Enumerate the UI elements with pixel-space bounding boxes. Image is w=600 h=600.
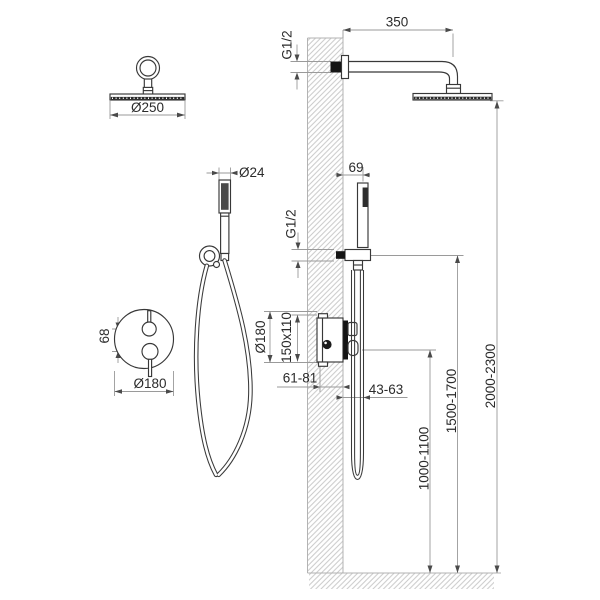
shower-system-technical-drawing: 350 G1/2 2000-2300 1500-1700 1000-1100 6… <box>0 0 600 600</box>
head-height-label: 2000-2300 <box>483 344 498 409</box>
hand-shower-side-sprayface <box>363 188 368 208</box>
dim-head-height: 2000-2300 <box>483 101 504 573</box>
ceiling-flange-inner <box>140 60 156 76</box>
dim-handle-projection: 43-63 <box>337 382 408 403</box>
dim-head-diameter: Ø250 <box>110 100 185 119</box>
hand-offset-label: 69 <box>348 160 363 175</box>
box-tab-top <box>319 314 328 318</box>
arm-nut <box>447 85 461 94</box>
hand-thread-label: G1/2 <box>283 209 298 238</box>
arm-thread-label: G1/2 <box>279 30 294 59</box>
mixer-height-label: 1000-1100 <box>416 427 431 491</box>
dim-holder-height: 1500-1700 <box>371 256 464 574</box>
lower-knob-lever <box>149 359 152 376</box>
arm-length-label: 350 <box>386 15 409 30</box>
hand-shower-front-view <box>196 180 250 475</box>
mixer-front-view <box>115 310 174 377</box>
handle-spacing-label: 68 <box>97 328 112 343</box>
dim-plate-diameter-front: Ø180 <box>115 371 174 396</box>
dim-arm-length: 350 <box>343 15 453 58</box>
hand-shower-holder <box>345 250 371 261</box>
wall-hatch <box>308 38 344 573</box>
mixer-lower-knob <box>142 344 158 360</box>
plate-diameter-side-label: Ø180 <box>253 320 268 353</box>
box-screw-highlight <box>324 342 327 345</box>
floor-section <box>308 573 502 589</box>
holder-height-label: 1500-1700 <box>444 369 459 434</box>
hose-side-inner <box>355 270 361 475</box>
holder-ring-knob <box>214 262 220 268</box>
floor-hatch <box>309 574 494 590</box>
mixer-trim-plate-side <box>343 321 348 360</box>
mixer-upper-knob <box>142 322 156 336</box>
holder-ring-inner <box>204 251 215 262</box>
hand-shower-spray-face <box>221 183 229 210</box>
plate-diameter-front-label: Ø180 <box>133 376 166 391</box>
rain-shower-front-view <box>110 57 185 101</box>
hand-shower-handle <box>221 213 229 254</box>
rain-head-front-sprayface <box>111 97 184 100</box>
head-diameter-label: Ø250 <box>131 100 164 115</box>
shower-arm <box>349 62 458 85</box>
roughin-depth-label: 61-81 <box>283 371 318 386</box>
box-tab-bottom <box>319 362 328 366</box>
hand-diameter-label: Ø24 <box>239 165 265 180</box>
arm-escutcheon <box>342 56 349 79</box>
holder-wall-stub <box>336 251 345 259</box>
mixer-upper-handle-side <box>348 323 357 336</box>
wall-section <box>308 38 344 573</box>
roughin-box-label: 150x110 <box>279 312 294 363</box>
mixer-lower-handle-side <box>348 341 358 356</box>
box-screw <box>322 340 331 349</box>
rough-in-box <box>317 318 343 362</box>
mixer-trim-plate-front <box>115 310 174 369</box>
hose-side-outer <box>352 270 364 480</box>
rain-shower-side-view <box>331 56 493 101</box>
handle-projection-label: 43-63 <box>369 382 404 397</box>
head-stem <box>144 79 151 88</box>
upper-knob-pin <box>148 311 151 323</box>
dim-hand-diameter: Ø24 <box>207 165 266 180</box>
